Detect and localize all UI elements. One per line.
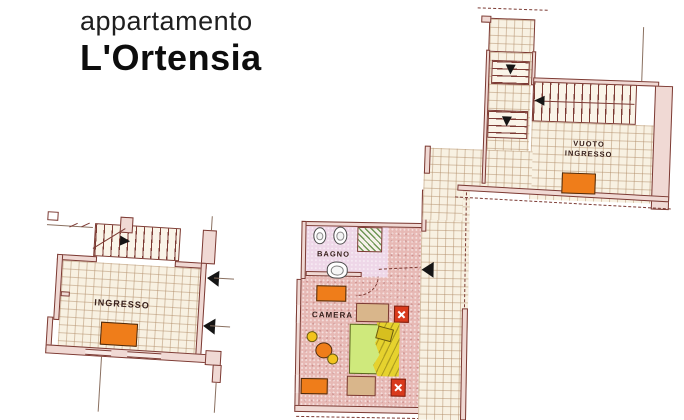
- bottom-wall: [294, 405, 425, 414]
- landing-notch-wall: [481, 15, 491, 22]
- upper-landing-floor: [488, 18, 535, 54]
- dimension-line: [98, 357, 103, 412]
- stairs-direction-arrow-icon: [502, 116, 512, 126]
- stairs-direction-arrow-icon: [120, 236, 131, 247]
- camera-dresser: [301, 378, 328, 394]
- ingresso-stairs: [93, 223, 181, 261]
- title-block: appartamento L'Ortensia: [80, 6, 262, 79]
- dimension-line: [211, 216, 213, 230]
- bagno-label: BAGNO: [317, 249, 350, 259]
- exterior-right-wall: [651, 86, 673, 211]
- window-opening: [295, 375, 300, 393]
- dimension-line: [641, 27, 644, 81]
- stairs-direction-arrow-icon: [534, 95, 544, 105]
- page-title-main: L'Ortensia: [80, 37, 262, 79]
- window-opening: [296, 305, 301, 323]
- toilet-icon: [327, 261, 348, 278]
- corridor-left-wall-stub: [424, 146, 431, 174]
- nightstand-lamp: [391, 379, 406, 397]
- camera-cabinet: [316, 285, 346, 302]
- door-marker-icon: [421, 262, 433, 278]
- vuoto-rug: [561, 172, 596, 194]
- dimension-line: [214, 383, 217, 413]
- exterior-dashed-line: [296, 416, 425, 419]
- plan-vuoto-ingresso: VUOTO INGRESSO: [420, 4, 683, 227]
- corridor-right-wall: [460, 308, 468, 420]
- stairs-direction-arrow-icon: [505, 64, 515, 74]
- floorplan-page: { "title": { "line1": "appartamento", "l…: [0, 0, 684, 420]
- bed-head-bench: [356, 303, 389, 323]
- page-title-sub: appartamento: [80, 6, 262, 37]
- ingresso-rug: [100, 322, 138, 347]
- plan-ingresso: INGRESSO: [37, 218, 243, 400]
- camera-label: CAMERA: [312, 310, 353, 320]
- shower-icon: [357, 227, 382, 252]
- exterior-dashed-line: [478, 7, 548, 10]
- nightstand-lamp: [394, 306, 409, 323]
- bed-foot-bench: [347, 376, 376, 397]
- corner-wall-bottom-right-stub: [212, 365, 222, 384]
- corner-wall-top-right: [201, 230, 217, 265]
- left-wall-stub: [61, 291, 70, 297]
- plan-camera-bagno: BAGNO CAMERA: [290, 209, 434, 417]
- survey-square: [47, 211, 59, 221]
- vuoto-ingresso-label: VUOTO INGRESSO: [549, 138, 630, 161]
- corridor-strip: [418, 190, 470, 420]
